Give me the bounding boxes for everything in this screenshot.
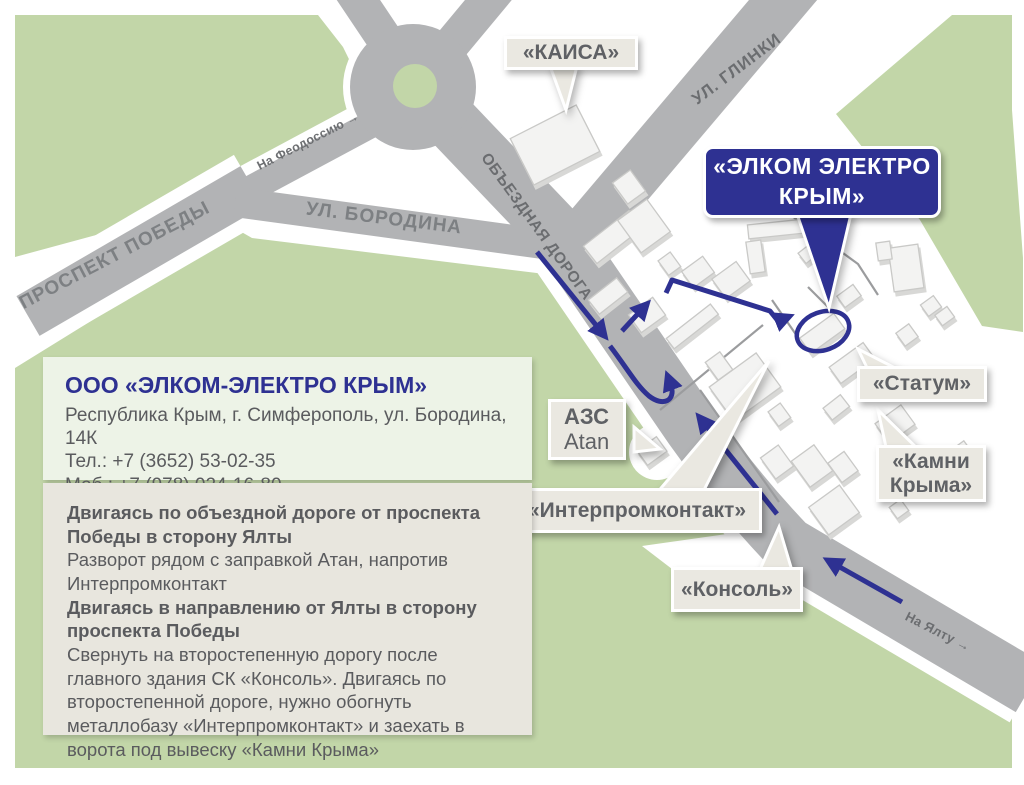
company-info-box: ООО «ЭЛКОМ-ЭЛЕКТРО КРЫМ» Республика Крым…	[43, 357, 532, 480]
callout-interpromkontakt-label: «Интерпромконтакт»	[528, 499, 746, 523]
callout-kamni: «Камни Крыма»	[876, 445, 986, 502]
building	[896, 324, 918, 346]
callout-konsol: «Консоль»	[671, 567, 803, 612]
directions-heading-2: Двигаясь в направлению от Ялты в сторону…	[67, 596, 508, 643]
callout-azs-line2: Atan	[564, 430, 609, 455]
building-konsol	[791, 445, 832, 487]
company-name: ООО «ЭЛКОМ-ЭЛЕКТРО КРЫМ»	[65, 372, 510, 399]
callout-kaisa: «КАИСА»	[504, 36, 638, 70]
roundabout-center	[393, 64, 437, 108]
callout-elkom: «ЭЛКОМ ЭЛЕКТРО КРЫМ»	[703, 146, 941, 218]
company-address: Республика Крым, г. Симферополь, ул. Бор…	[65, 404, 510, 450]
building	[837, 284, 861, 307]
directions-heading-1: Двигаясь по объездной дороге от проспект…	[67, 501, 508, 548]
callout-statum-label: «Статум»	[873, 372, 971, 396]
callout-statum: «Статум»	[857, 366, 987, 402]
callout-interpromkontakt: «Интерпромконтакт»	[512, 488, 762, 533]
building	[823, 395, 850, 420]
building	[828, 451, 858, 482]
callout-kaisa-label: «КАИСА»	[523, 41, 619, 65]
building	[666, 304, 718, 349]
building	[746, 240, 765, 274]
building	[658, 252, 681, 275]
callout-konsol-label: «Консоль»	[681, 578, 793, 602]
building	[889, 499, 909, 519]
kaisa-pointer	[550, 66, 577, 110]
callout-azs: АЗС Atan	[548, 399, 626, 460]
building	[747, 219, 804, 239]
building	[768, 403, 791, 426]
callout-azs-line1: АЗС	[564, 405, 609, 430]
callout-kamni-line1: «Камни	[892, 450, 970, 474]
callout-kamni-line2: Крыма»	[890, 474, 972, 498]
building	[876, 241, 892, 261]
map-page: ПРОСПЕКТ ПОБЕДЫ На Феодоссию → УЛ. БОРОД…	[0, 0, 1024, 785]
directions-text-2: Свернуть на второстепенную дорогу после …	[67, 643, 508, 761]
directions-text-1: Разворот рядом с заправкой Атан, напроти…	[67, 548, 508, 595]
directions-box: Двигаясь по объездной дороге от проспект…	[43, 483, 532, 735]
company-phone: Тел.: +7 (3652) 53-02-35	[65, 450, 510, 473]
callout-elkom-line2: КРЫМ»	[779, 182, 865, 212]
callout-elkom-line1: «ЭЛКОМ ЭЛЕКТРО	[713, 152, 930, 182]
building	[888, 244, 924, 292]
